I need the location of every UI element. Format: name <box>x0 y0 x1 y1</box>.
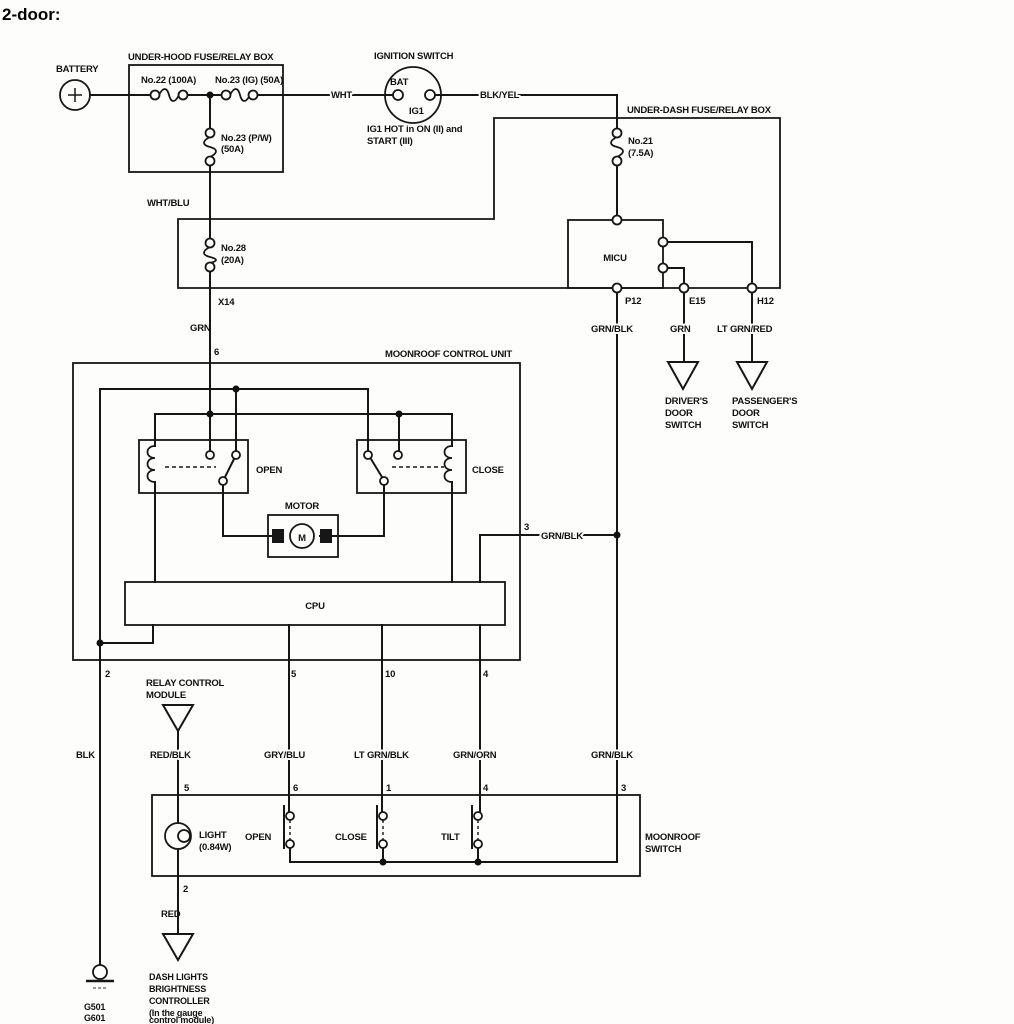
switch-pin-1-label: 1 <box>386 783 392 794</box>
connector-e15-label: E15 <box>689 296 706 307</box>
open-relay-coil-icon <box>148 446 156 482</box>
wire-label-blk: BLK <box>76 750 95 761</box>
cpu-label: CPU <box>305 601 325 612</box>
wire-label-grn-blk-3: GRN/BLK <box>541 531 583 542</box>
pin-2-label: 2 <box>105 669 110 680</box>
light-bulb-icon <box>165 823 191 849</box>
passengers-door-switch-triangle-icon <box>737 362 767 389</box>
fuse-28-label: No.28 <box>221 243 246 254</box>
close-relay-label: CLOSE <box>472 465 504 476</box>
connector-h12-label: H12 <box>757 296 774 307</box>
drivers-door-switch-label-line1: DRIVER'S <box>665 396 708 407</box>
page-title: 2-door: <box>2 5 61 24</box>
fuse-elements <box>159 89 623 263</box>
ground-icon <box>86 965 114 988</box>
drivers-door-switch-triangle-icon <box>668 362 698 389</box>
switch-pin-5-label: 5 <box>184 783 190 794</box>
pin-5-label: 5 <box>291 669 297 680</box>
passengers-door-switch-label-line3: SWITCH <box>732 420 769 431</box>
fuse-23-ig-label: No.23 (IG) (50A) <box>215 75 283 86</box>
passengers-door-switch-label-line2: DOOR <box>732 408 760 419</box>
ground-g501-label: G501 <box>84 1002 105 1012</box>
wire-label-lt-grn-blk: LT GRN/BLK <box>354 750 409 761</box>
moonroof-switch-label-line1: MOONROOF <box>645 832 701 843</box>
light-wattage-label: (0.84W) <box>199 842 231 853</box>
wire-label-wht-blu: WHT/BLU <box>147 198 190 209</box>
close-relay-coil-icon <box>445 446 453 482</box>
fuse-23-pw-rating: (50A) <box>221 144 244 155</box>
switch-pin-6-label: 6 <box>293 783 298 794</box>
moonroof-switch-label-line2: SWITCH <box>645 844 682 855</box>
battery-icon <box>60 80 90 110</box>
fuse-21-label: No.21 <box>628 136 654 147</box>
pin-10-label: 10 <box>385 669 395 680</box>
dash-lights-triangle-icon <box>163 934 193 960</box>
switch-tilt-label: TILT <box>441 832 460 843</box>
switch-pin-3-label: 3 <box>621 783 626 794</box>
under-hood-box-title: UNDER-HOOD FUSE/RELAY BOX <box>128 52 274 63</box>
close-relay-box <box>357 440 466 493</box>
pin-3-label: 3 <box>524 522 529 533</box>
wire-label-gry-blu: GRY/BLU <box>264 750 305 761</box>
dash-controller-label-line3: CONTROLLER <box>149 996 210 1006</box>
micu-label: MICU <box>603 253 627 264</box>
drivers-door-switch-label-line3: SWITCH <box>665 420 702 431</box>
fuse-21-rating: (7.5A) <box>628 148 653 159</box>
switch-pin-2-label: 2 <box>183 884 188 895</box>
motor-m-label: M <box>298 533 306 544</box>
switch-close-label: CLOSE <box>335 832 367 843</box>
ignition-note-line1: IG1 HOT in ON (II) and <box>367 124 463 135</box>
ignition-bat-terminal-label: BAT <box>390 77 409 88</box>
switch-pin-4-label: 4 <box>483 783 489 794</box>
wire-label-red: RED <box>161 909 181 920</box>
wire-label-grn: GRN <box>190 323 211 334</box>
open-relay-label: OPEN <box>256 465 282 476</box>
terminals <box>151 90 757 848</box>
wire-label-grn-e15: GRN <box>670 324 691 335</box>
motor-label: MOTOR <box>285 501 320 512</box>
ignition-switch-title: IGNITION SWITCH <box>374 51 454 62</box>
wire-label-wht: WHT <box>331 90 352 101</box>
relay-control-module-label-line1: RELAY CONTROL <box>146 678 225 689</box>
connector-x14-label: X14 <box>218 297 235 308</box>
relay-control-module-label-line2: MODULE <box>146 690 186 701</box>
wire-label-grn-blk-sw: GRN/BLK <box>591 750 633 761</box>
pin-6-label: 6 <box>214 347 219 358</box>
ground-g601-label: G601 <box>84 1013 105 1023</box>
passengers-door-switch-label-line1: PASSENGER'S <box>732 396 797 407</box>
battery-label: BATTERY <box>56 64 99 75</box>
pin-4-label: 4 <box>483 669 489 680</box>
ignition-note-line2: START (III) <box>367 136 413 147</box>
dash-controller-label-line1: DASH LIGHTS <box>149 972 208 982</box>
switch-open-label: OPEN <box>245 832 271 843</box>
moonroof-control-unit-title: MOONROOF CONTROL UNIT <box>385 349 512 360</box>
open-relay-arm <box>225 459 234 477</box>
wire-label-lt-grn-red: LT GRN/RED <box>717 324 773 335</box>
wire-label-grn-blk-p12: GRN/BLK <box>591 324 633 335</box>
connector-p12-label: P12 <box>625 296 641 307</box>
wiring-diagram-page: 2-door: BATTERY UNDER-HOOD FUSE/RELAY BO… <box>0 0 1014 1024</box>
fuse-23-pw-label: No.23 (P/W) <box>221 133 272 144</box>
ignition-ig1-terminal-label: IG1 <box>409 106 425 117</box>
wire-label-grn-orn: GRN/ORN <box>453 750 497 761</box>
dash-controller-label-line2: BRIGHTNESS <box>149 984 206 994</box>
close-relay-arm <box>371 459 382 477</box>
moonroof-wiring-diagram: 2-door: BATTERY UNDER-HOOD FUSE/RELAY BO… <box>0 0 1014 1024</box>
relay-control-module-triangle-icon <box>163 705 193 731</box>
drivers-door-switch-label-line2: DOOR <box>665 408 693 419</box>
fuse-28-rating: (20A) <box>221 255 244 266</box>
light-label: LIGHT <box>199 830 227 841</box>
fuse-22-label: No.22 (100A) <box>141 75 196 86</box>
wire-label-blk-yel: BLK/YEL <box>480 90 520 101</box>
wire-label-red-blk: RED/BLK <box>150 750 191 761</box>
under-dash-box-title: UNDER-DASH FUSE/RELAY BOX <box>627 105 772 116</box>
dash-controller-label-line5: control module) <box>149 1015 214 1024</box>
